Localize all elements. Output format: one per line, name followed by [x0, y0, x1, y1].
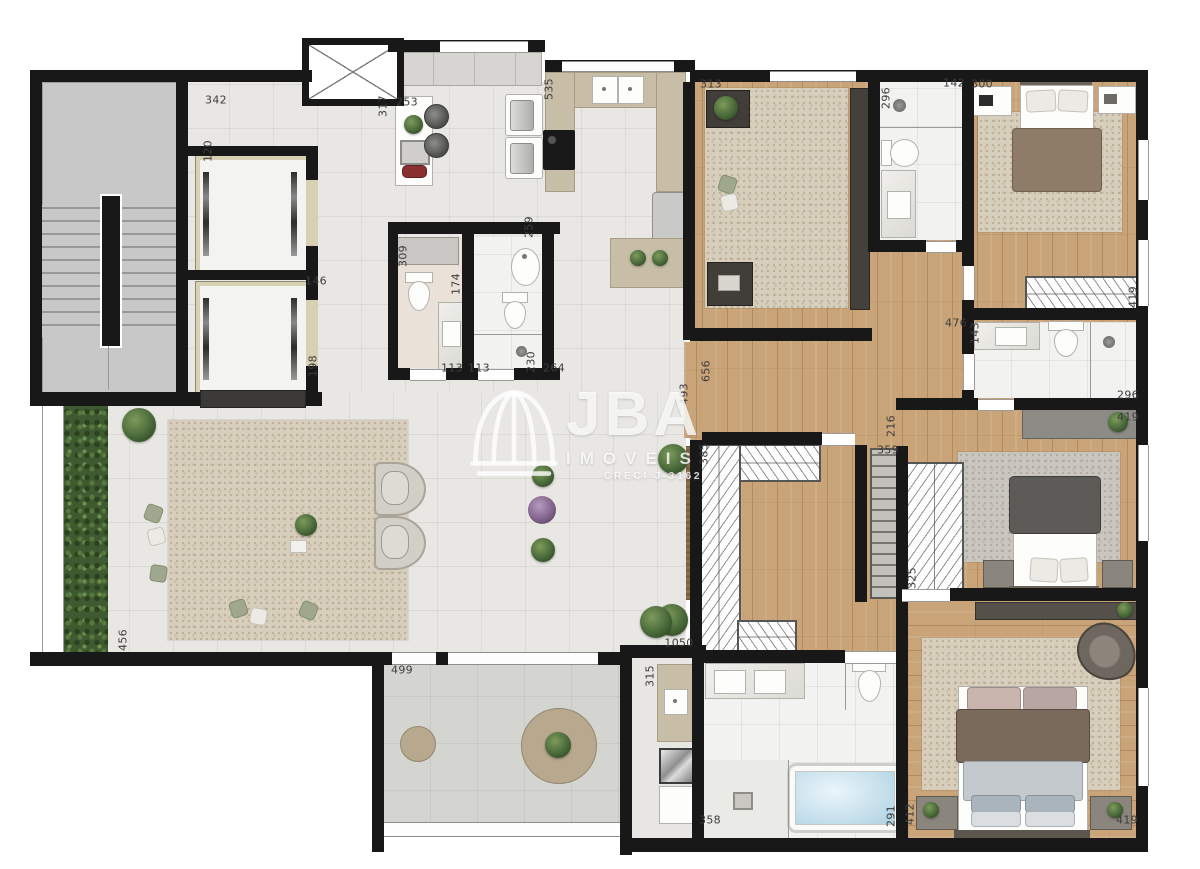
sink-counter	[881, 170, 916, 238]
wall	[702, 432, 822, 445]
dimension-label: 325	[906, 567, 919, 589]
kitchen-island	[610, 238, 690, 288]
dimension-label: 113	[468, 362, 490, 375]
wall	[896, 398, 978, 410]
closet-door	[822, 433, 855, 446]
bath-2-counter	[974, 322, 1040, 350]
wall	[950, 588, 1148, 601]
master-bed	[958, 686, 1088, 834]
dimension-label: 300	[971, 78, 993, 91]
toilet-partition	[845, 664, 846, 710]
bedroom-2-door	[978, 399, 1014, 411]
wall	[868, 240, 926, 252]
bed-2-blanket	[1009, 476, 1101, 534]
master-suite-door	[902, 589, 950, 602]
dining-centerpiece-1	[532, 465, 554, 487]
dimension-label: 174	[450, 273, 463, 295]
dimension-label: 143	[969, 322, 982, 344]
living-plant	[122, 408, 156, 442]
wall	[620, 838, 1148, 852]
faucet-icon	[628, 87, 632, 91]
bathroom-sink	[511, 248, 540, 286]
sofa-pillow	[149, 564, 168, 583]
bed-1-nightstand-right	[1098, 86, 1136, 114]
dining-sliding-door	[448, 652, 598, 665]
sofa-pillow	[719, 192, 739, 212]
kitchen-sink-1	[592, 76, 618, 104]
armchair-cushion	[1083, 629, 1126, 673]
wall	[186, 270, 308, 280]
tv-panel	[850, 88, 870, 310]
dimension-label: 419	[1116, 814, 1138, 827]
cooktop	[543, 130, 575, 170]
bed-2-pillow	[1029, 557, 1059, 583]
bathroom-1-door	[926, 241, 956, 253]
wall	[30, 70, 42, 404]
entry-door	[440, 41, 528, 53]
dimension-label: 315	[644, 665, 657, 687]
wall	[462, 230, 474, 380]
elevator-2	[196, 282, 312, 400]
bed-2-nightstand-left	[983, 560, 1014, 588]
barbecue-sink	[664, 689, 688, 715]
bed-1-blanket	[1012, 128, 1102, 192]
dimension-label: 358	[699, 814, 721, 827]
magazine-icon	[290, 540, 307, 553]
wall	[690, 70, 1148, 82]
kitchen-window	[562, 61, 674, 72]
island-plant-1	[630, 250, 646, 266]
dryer	[505, 137, 543, 179]
dimension-label: 342	[205, 94, 227, 107]
terrace-table-plant	[545, 732, 571, 758]
dimension-label: 656	[700, 360, 713, 382]
faucet-icon	[602, 87, 606, 91]
closet-wardrobe-bottom	[737, 620, 797, 654]
faucet-icon	[522, 254, 527, 259]
shower-divider	[474, 334, 542, 335]
wall	[372, 652, 384, 852]
dryer-door	[510, 143, 534, 174]
bedroom-2-window	[1138, 445, 1149, 541]
dimension-label: 230	[525, 351, 538, 373]
elevator-2-door-track	[203, 298, 209, 380]
dining-centerpiece-flowers	[528, 496, 556, 524]
staircase-divider	[108, 346, 109, 390]
dimension-label: 291	[885, 805, 898, 827]
dimension-label: 253	[396, 96, 418, 109]
master-bedroom-window	[1138, 688, 1149, 786]
wall	[692, 650, 845, 663]
bed-1-nightstand-left	[972, 86, 1012, 116]
dimension-label: 419	[1127, 286, 1140, 308]
wall	[30, 70, 312, 82]
dimension-label: 359	[877, 444, 899, 457]
shower-divider	[1090, 322, 1091, 398]
dimension-label: 493	[678, 383, 691, 405]
elevator-1-door	[306, 180, 318, 246]
sideboard-plant-top	[658, 444, 688, 474]
dimension-label: 142	[943, 77, 965, 90]
kitchen-counter-right	[656, 72, 686, 192]
dimension-label: 296	[880, 87, 893, 109]
elevator-1-counterweight	[291, 172, 297, 256]
wall	[868, 82, 880, 252]
shower-drain-icon	[733, 792, 753, 810]
bed-2-pillow	[1059, 557, 1089, 583]
dimension-label: 216	[885, 415, 898, 437]
balcony-glass	[42, 396, 64, 654]
tv-room-window	[770, 71, 856, 82]
laundry-tray	[402, 165, 427, 178]
staircase-rail	[102, 196, 120, 346]
toilet-bowl	[890, 139, 919, 167]
armchair-cushion	[381, 471, 409, 505]
coffee-table-plant	[295, 514, 317, 536]
shower-head-icon	[893, 99, 906, 112]
bedroom-1-window	[1138, 140, 1149, 200]
tv-room-side-table-2	[707, 262, 753, 306]
laundry-plant	[404, 115, 423, 134]
bed-pillow	[1025, 811, 1075, 827]
wall	[176, 82, 188, 404]
elevator-1-door-track	[203, 172, 209, 256]
dimension-label: 1050	[664, 637, 693, 650]
washer-drum	[424, 133, 449, 158]
vertical-garden-hedge	[62, 406, 108, 654]
terrace-side-table	[400, 726, 436, 762]
dimension-label: 309	[397, 245, 410, 267]
kitchen-sink-2	[618, 76, 644, 104]
dimension-label: 419	[1117, 411, 1139, 424]
powder-sink-basin	[442, 321, 461, 347]
bedroom-1-door	[963, 266, 975, 300]
elevator-2-counterweight	[291, 298, 297, 380]
deco-icon	[1104, 94, 1117, 104]
bed-1-pillow	[1025, 89, 1056, 113]
bath-2-basin	[995, 327, 1027, 346]
wall	[436, 652, 448, 665]
dimension-label: 317	[377, 95, 390, 117]
dimension-label: 259	[523, 216, 536, 238]
refrigerator	[652, 192, 686, 242]
dimension-label: 385	[698, 443, 711, 465]
barbecue-counter	[657, 664, 694, 742]
closet-wardrobe-top	[737, 444, 821, 482]
wall	[690, 440, 702, 652]
tray-icon	[718, 275, 740, 291]
island-plant-2	[652, 250, 668, 266]
wall	[542, 222, 554, 380]
master-bath-counter	[705, 663, 805, 699]
bedroom-1-window-2	[1138, 240, 1149, 306]
terrace-railing	[384, 822, 620, 837]
dimension-label: 476	[945, 317, 967, 330]
sofa-pillow	[249, 607, 269, 627]
shower-head-icon	[1103, 336, 1115, 348]
wall	[598, 652, 622, 665]
wall	[962, 70, 974, 266]
bedroom-1-wardrobe	[1025, 276, 1141, 312]
book-icon	[979, 95, 993, 106]
master-basin-2	[754, 670, 786, 694]
wall	[855, 445, 867, 602]
dimension-label: 456	[117, 629, 130, 651]
wall	[690, 328, 872, 341]
floor-plan: 3421203172535353132961423001461983091742…	[0, 0, 1200, 869]
shower-divider	[880, 127, 962, 128]
dimension-label: 120	[202, 140, 215, 162]
master-bathroom-door	[845, 651, 896, 664]
barbecue-grill	[659, 748, 696, 784]
washing-machine-door	[510, 100, 534, 131]
bed-duvet	[956, 709, 1090, 763]
laundry-sink-drum	[424, 104, 449, 129]
wall	[962, 308, 1148, 320]
bed-pillow	[971, 811, 1021, 827]
washing-machine	[505, 94, 543, 136]
sink-basin	[887, 191, 911, 219]
bed-foot-cushion	[1023, 687, 1077, 711]
master-tv-console	[975, 602, 1137, 620]
nook-plant	[640, 606, 672, 638]
dimension-label: 535	[543, 78, 556, 100]
dimension-label: 113	[441, 362, 463, 375]
dimension-label: 296	[1117, 389, 1139, 402]
faucet-icon	[673, 699, 677, 703]
dimension-label: 264	[543, 362, 565, 375]
dimension-label: 198	[307, 355, 320, 377]
nook-cabinet	[659, 786, 694, 824]
nightstand-plant	[923, 802, 939, 818]
closet-wardrobe-left	[697, 444, 741, 654]
living-room-rug	[168, 420, 408, 640]
master-nightstand-left	[916, 796, 958, 830]
armchair-cushion	[381, 525, 409, 559]
wall	[30, 652, 382, 666]
tv-room-plant	[714, 96, 738, 120]
master-basin-1	[714, 670, 746, 694]
dining-centerpiece-2	[531, 538, 555, 562]
dimension-label: 499	[391, 664, 413, 677]
dimension-label: 412	[904, 803, 917, 825]
wall	[620, 645, 632, 855]
elevator-1	[196, 156, 312, 276]
powder-sink-counter	[438, 302, 465, 370]
console-plant	[1117, 602, 1133, 618]
bed-1-pillow	[1057, 89, 1088, 113]
media-console	[200, 390, 306, 408]
bathroom-2-door	[963, 354, 975, 390]
bed-2-nightstand-right	[1102, 560, 1133, 588]
dimension-label: 146	[305, 275, 327, 288]
bed-foot-cushion	[967, 687, 1021, 711]
dimension-label: 313	[700, 78, 722, 91]
service-counter	[392, 52, 542, 86]
shower-glass	[788, 760, 789, 838]
wall	[388, 368, 410, 380]
wall	[683, 82, 695, 340]
